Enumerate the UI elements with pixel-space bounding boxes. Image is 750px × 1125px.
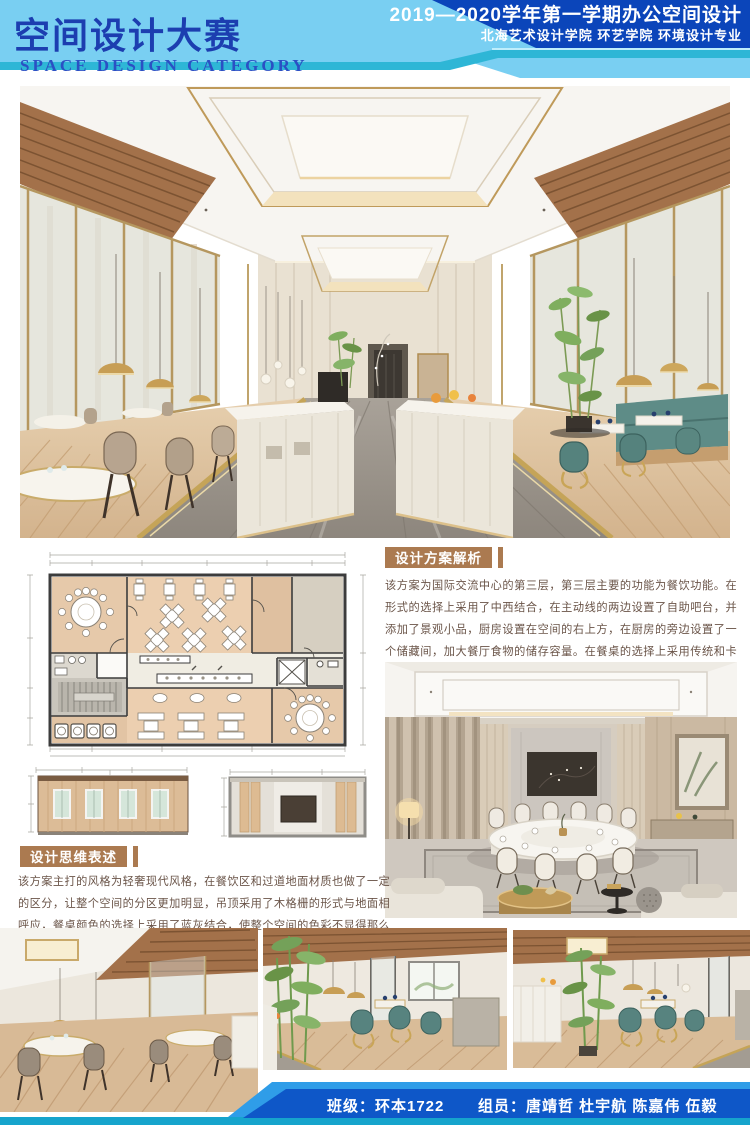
concept-badge: 设计思维表述 — [20, 846, 127, 867]
school-title: 北海艺术设计学院 环艺学院 环境设计专业 — [389, 28, 742, 44]
bottom-photo-2 — [263, 928, 507, 1070]
elevation-drawings — [22, 762, 372, 844]
private-room-image — [385, 662, 737, 918]
course-title: 2019—2020学年第一学期办公空间设计 — [389, 4, 742, 28]
header-banner: 空间设计大赛 SPACE DESIGN CATEGORY 2019—2020学年… — [0, 0, 750, 90]
footer-members-label: 组员：唐靖哲 杜宇航 陈嘉伟 伍毅 — [478, 1095, 718, 1116]
elevation-a — [28, 767, 188, 835]
footer-class-label: 班级：环本1722 — [327, 1095, 444, 1116]
analysis-badge-bar — [498, 547, 503, 568]
analysis-badge: 设计方案解析 — [385, 547, 492, 568]
elevation-b — [221, 769, 365, 836]
vip-right-wall — [645, 717, 737, 859]
page-title: 空间设计大赛 — [14, 18, 242, 54]
bottom-photo-3 — [513, 930, 750, 1068]
poster-board: 空间设计大赛 SPACE DESIGN CATEGORY 2019—2020学年… — [0, 0, 750, 1125]
page-subtitle: SPACE DESIGN CATEGORY — [20, 56, 308, 76]
plan-booths — [138, 694, 244, 740]
concept-badge-bar — [133, 846, 138, 867]
vip-ceiling — [385, 662, 737, 725]
header-course-banner: 2019—2020学年第一学期办公空间设计 北海艺术设计学院 环艺学院 环境设计… — [389, 4, 742, 44]
footer-banner: 班级：环本1722 组员：唐靖哲 杜宇航 陈嘉伟 伍毅 — [0, 1078, 750, 1125]
plan-stairs — [58, 682, 122, 712]
analysis-section-header: 设计方案解析 — [385, 547, 503, 568]
main-render-image — [20, 86, 730, 538]
concept-section-header: 设计思维表述 — [20, 846, 138, 867]
floor-plan-image — [22, 548, 372, 760]
